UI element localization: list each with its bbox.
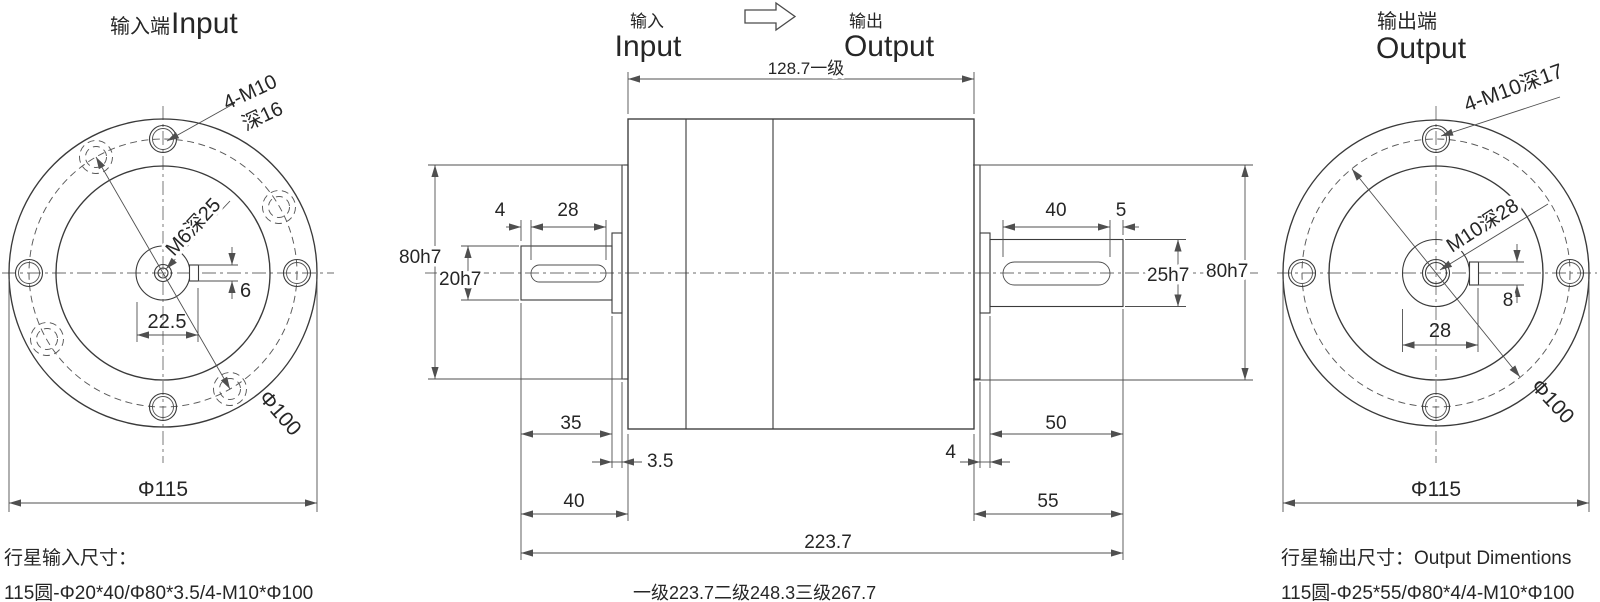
input-note-title: 行星输入尺寸： [4,547,137,569]
dim-output-boss-dia: 80h7 [1206,261,1248,282]
dim-output-step: 4 [945,442,956,463]
dim-key-offset: 22.5 [148,311,187,333]
label-input-en: Input [615,30,682,63]
output-note-title: 行星输出尺寸：Output Dimentions [1281,547,1571,569]
output-key-extension-lines [1003,220,1123,257]
flow-direction-arrow-icon [745,3,795,30]
label-output-cn: 输出 [849,12,883,31]
gearbox-housing [628,119,974,429]
side-view: 输入 Input 输出 Output 128.7一级 4 28 20h [399,3,1258,602]
dim-outer-diameter: Φ115 [1411,478,1461,501]
input-note-spec: 115圆-Φ20*40/Φ80*3.5/4-M10*Φ100 [4,583,313,602]
dim-input-key-length: 28 [557,200,578,221]
dim-output-key-length: 40 [1045,200,1066,221]
hub-keyway [190,265,199,281]
dim-housing-length: 128.7一级 [768,59,845,78]
label-output-en: Output [844,30,935,63]
key-width-extension-lines [1478,262,1524,285]
dim-key-offset: 28 [1429,320,1451,342]
dim-key-width: 6 [240,280,251,302]
bolt-holes-leader [167,103,235,141]
hub-keyway [1470,262,1479,285]
drawing-canvas: Φ115 22.5 6 Φ100 M6深25 4-M10 深16 输入端 Inp… [0,0,1600,602]
dim-input-shaft-length: 35 [560,413,581,434]
dim-output-shaft-length: 50 [1045,413,1066,434]
output-boss [974,165,980,379]
stages-note: 一级223.7二级248.3三级267.7 [633,583,876,602]
input-flange-view: Φ115 22.5 6 Φ100 M6深25 4-M10 深16 输入端 Inp… [2,7,334,602]
dim-bolt-circle: Φ100 [254,386,305,440]
housing-len-extension-lines [628,72,974,114]
dim-bolt-circle: Φ100 [1526,375,1578,429]
input-shaft-keyway [531,265,606,282]
housing-section-joints [686,119,773,429]
output-flange-view: Φ115 28 8 Φ100 M10深28 4-M10深17 输出端 Outpu… [1277,10,1597,602]
output-note-spec: 115圆-Φ25*55/Φ80*4/4-M10*Φ100 [1281,583,1574,602]
bottom-extension-lines [521,303,1123,560]
input-boss [622,165,628,379]
gearbox-technical-drawing: Φ115 22.5 6 Φ100 M6深25 4-M10 深16 输入端 Inp… [0,0,1600,602]
dim-overall-length: 223.7 [804,532,852,553]
leader-bolts: 4-M10深17 [1461,60,1566,117]
dim-input-boss-dia: 80h7 [399,247,441,268]
dim-input-shaft-dia: 20h7 [439,269,481,290]
leader-center-tap: M6深25 [161,194,226,261]
label-input-cn: 输入 [630,12,664,31]
output-end-title-cn: 输出端 [1377,10,1437,33]
input-end-title-cn: 输入端 [110,15,170,38]
output-end-title-en: Output [1376,32,1467,65]
input-key-extension-lines [521,220,606,260]
dim-input-total: 40 [563,491,584,512]
dim-input-step: 3.5 [647,451,673,472]
dim-output-total: 55 [1037,491,1058,512]
dim-output-key-to-tip: 5 [1116,200,1127,221]
input-end-title-en: Input [171,7,238,40]
dim-output-shaft-dia: 25h7 [1147,265,1189,286]
dim-input-tip-to-key: 4 [495,200,506,221]
dim-outer-diameter: Φ115 [138,478,188,501]
output-shaft-keyway [1003,262,1110,285]
dim-key-width: 8 [1503,290,1514,311]
leader-center-tap: M10深28 [1442,194,1523,257]
